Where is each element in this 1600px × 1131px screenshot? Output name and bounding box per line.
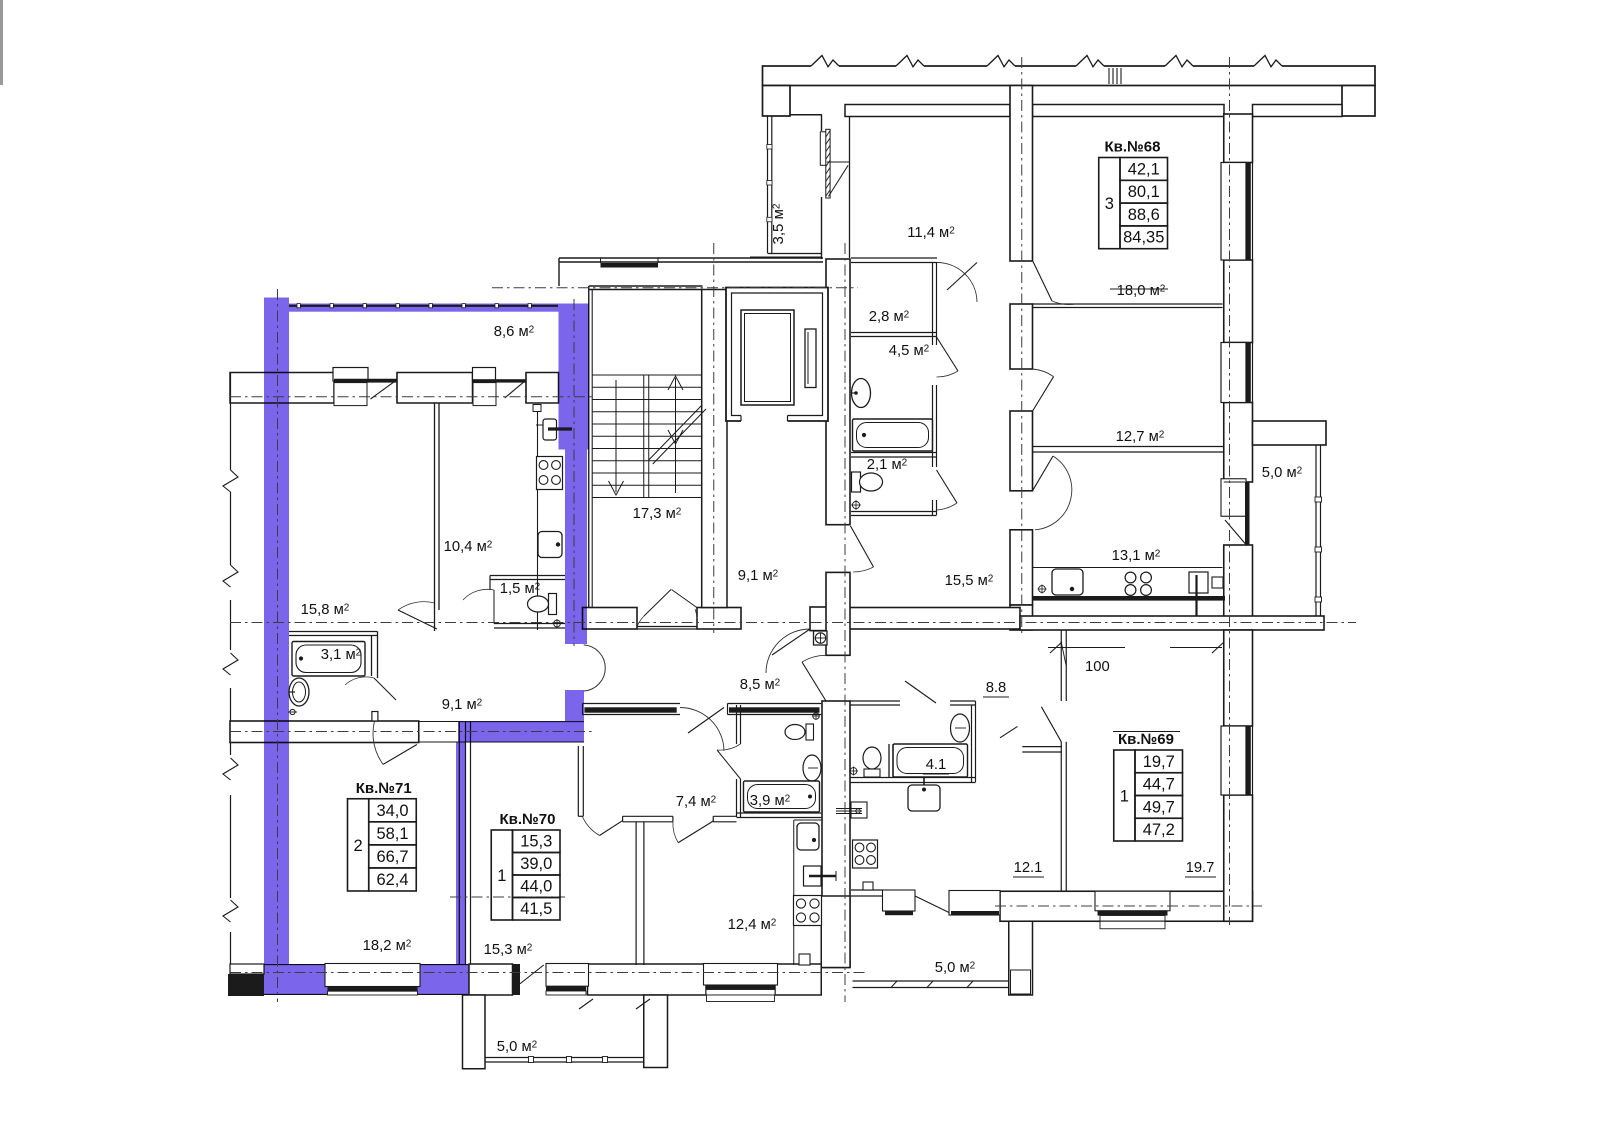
svg-text:3,9 м2: 3,9 м2 bbox=[750, 793, 791, 809]
svg-text:44,7: 44,7 bbox=[1143, 776, 1175, 794]
svg-text:3,1 м2: 3,1 м2 bbox=[321, 647, 362, 663]
svg-text:12,4 м2: 12,4 м2 bbox=[728, 917, 777, 933]
svg-text:1: 1 bbox=[1120, 788, 1129, 806]
svg-text:8,6 м2: 8,6 м2 bbox=[494, 324, 535, 340]
svg-text:18,2 м2: 18,2 м2 bbox=[363, 938, 412, 954]
svg-text:Кв.№69: Кв.№69 bbox=[1118, 731, 1174, 748]
svg-text:10,4 м2: 10,4 м2 bbox=[444, 539, 493, 555]
svg-text:84,35: 84,35 bbox=[1123, 229, 1164, 247]
svg-text:9,1 м2: 9,1 м2 bbox=[738, 568, 779, 584]
svg-text:15,8 м2: 15,8 м2 bbox=[301, 602, 350, 618]
svg-text:66,7: 66,7 bbox=[376, 848, 408, 866]
svg-text:1: 1 bbox=[497, 867, 506, 885]
svg-text:15,3 м2: 15,3 м2 bbox=[484, 942, 533, 958]
svg-text:1,5 м2: 1,5 м2 bbox=[500, 581, 541, 597]
svg-text:3: 3 bbox=[1105, 195, 1114, 213]
svg-text:44,0: 44,0 bbox=[520, 878, 552, 896]
svg-text:62,4: 62,4 bbox=[376, 871, 408, 889]
svg-text:58,1: 58,1 bbox=[376, 825, 408, 843]
svg-text:39,0: 39,0 bbox=[520, 855, 552, 873]
svg-text:17,3 м2: 17,3 м2 bbox=[633, 506, 682, 522]
svg-text:42,1: 42,1 bbox=[1128, 160, 1160, 178]
svg-text:19,7: 19,7 bbox=[1143, 753, 1175, 771]
svg-text:12,7 м2: 12,7 м2 bbox=[1116, 429, 1165, 445]
svg-text:41,5: 41,5 bbox=[520, 900, 552, 918]
svg-text:11,4 м2: 11,4 м2 bbox=[907, 225, 955, 241]
svg-text:49,7: 49,7 bbox=[1143, 798, 1175, 816]
svg-text:12.1: 12.1 bbox=[1014, 860, 1043, 876]
svg-text:4.1: 4.1 bbox=[926, 757, 947, 773]
svg-text:7,4 м2: 7,4 м2 bbox=[676, 794, 717, 810]
svg-text:2,1 м2: 2,1 м2 bbox=[867, 457, 908, 473]
svg-text:3,5 м2: 3,5 м2 bbox=[770, 203, 787, 244]
svg-text:8,5 м2: 8,5 м2 bbox=[740, 677, 781, 693]
svg-text:15,3: 15,3 bbox=[520, 833, 552, 851]
svg-text:47,2: 47,2 bbox=[1143, 821, 1175, 839]
svg-text:100: 100 bbox=[1085, 659, 1110, 675]
svg-text:5,0 м2: 5,0 м2 bbox=[497, 1039, 538, 1055]
svg-text:15,5 м2: 15,5 м2 bbox=[945, 573, 994, 589]
svg-text:80,1: 80,1 bbox=[1128, 183, 1160, 201]
svg-text:5,0 м2: 5,0 м2 bbox=[1262, 465, 1303, 481]
svg-text:34,0: 34,0 bbox=[376, 802, 408, 820]
svg-text:9,1 м2: 9,1 м2 bbox=[442, 697, 483, 713]
svg-text:18,0 м2: 18,0 м2 bbox=[1117, 283, 1166, 299]
svg-text:2: 2 bbox=[354, 837, 363, 855]
svg-text:2,8 м2: 2,8 м2 bbox=[869, 309, 910, 325]
svg-text:4,5 м2: 4,5 м2 bbox=[889, 343, 930, 359]
svg-text:5,0 м2: 5,0 м2 bbox=[935, 960, 976, 976]
svg-text:Кв.№68: Кв.№68 bbox=[1105, 139, 1161, 156]
svg-text:8.8: 8.8 bbox=[986, 680, 1007, 696]
svg-text:88,6: 88,6 bbox=[1128, 206, 1160, 224]
svg-text:Кв.№71: Кв.№71 bbox=[356, 780, 412, 797]
svg-text:Кв.№70: Кв.№70 bbox=[500, 811, 556, 828]
svg-text:19.7: 19.7 bbox=[1186, 860, 1215, 876]
svg-text:13,1 м2: 13,1 м2 bbox=[1112, 548, 1161, 564]
